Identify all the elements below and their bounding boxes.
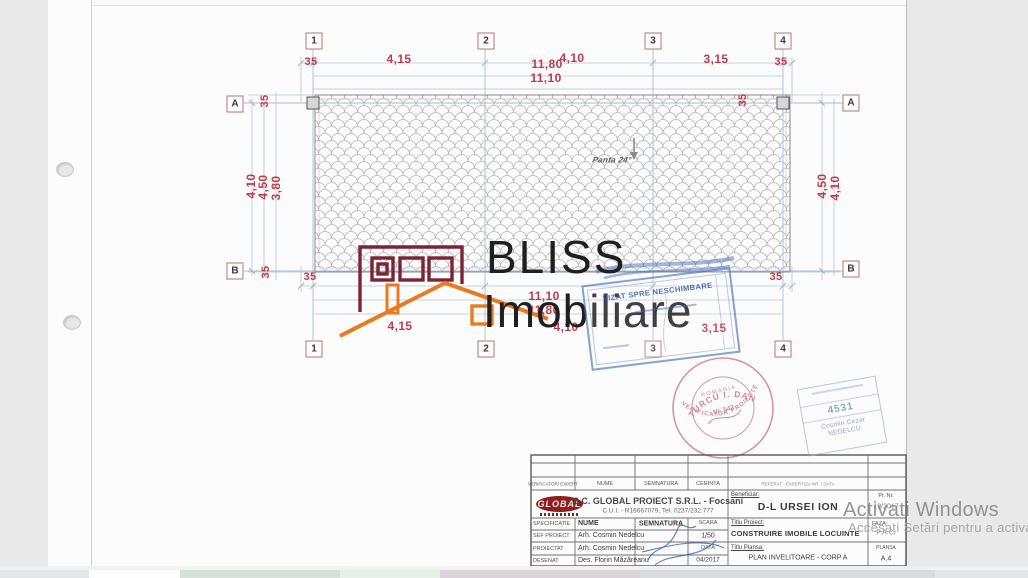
vizat-stamp: VIZAT SPRE NESCHIMBARE <box>581 267 740 371</box>
tb-data-label: DATA <box>701 545 715 551</box>
tb-specificatie-label: SPECIFICATIE <box>533 521 570 527</box>
thumbnail-filmstrip[interactable] <box>0 570 1028 578</box>
tb-spec-nume: NUME <box>578 520 599 527</box>
tb-nume-header: NUME <box>597 481 613 487</box>
tb-plansa-label: PLANSA <box>876 545 896 551</box>
tb-proiectat-name: Arh. Cosmin Nedelcu <box>578 545 644 552</box>
tb-plansa-title-value: PLAN INVELITOARE - CORP A <box>749 555 848 562</box>
global-logo-teeth <box>540 513 580 516</box>
tb-referat: REFERAT - EXPERTIZA NR. / DATA <box>761 482 834 487</box>
tb-beneficiar-value: D-L URSEI ION <box>758 501 838 513</box>
tb-plansa-title-label: Titlu Plansa: <box>731 545 764 551</box>
tb-proiectat-label: PROIECTAT <box>533 546 564 552</box>
tb-proiect-value: CONSTRUIRE IMOBILE LOCUINTE <box>731 529 860 538</box>
tb-data-value: 04/2017 <box>696 557 720 564</box>
brand-name: BLISS <box>486 234 626 280</box>
tb-company-cui: C.U.I. - R16667079, Tel. 0237/232.777 <box>602 508 713 515</box>
architect-stamp: 4531 Cosmin Cezar NEDELCU <box>797 376 888 457</box>
tb-proiect-label: Titlu Proiect: <box>731 520 764 526</box>
tb-scara-value: 1/50 <box>701 533 715 540</box>
tb-verificator-label: VERIFICATOR/ EXPERT <box>528 482 578 487</box>
tb-spec-semnatura: SEMNATURA <box>639 521 683 528</box>
tb-desenat-label: DESENAT <box>533 558 559 564</box>
tb-scara-label: SCARA <box>699 520 718 526</box>
tb-desenat-name: Des. Florin Măzăreanu <box>578 557 649 564</box>
tb-plansa-value: A.4 <box>881 556 892 563</box>
tb-company-name: S.C. GLOBAL PROIECT S.R.L. - Focsani <box>573 496 743 506</box>
tb-semnatura-header: SEMNATURA <box>644 481 678 487</box>
tb-sef-name: Arh. Cosmin Nedelcu <box>578 532 644 539</box>
tb-beneficiar-label: Beneficiar: <box>731 492 759 498</box>
activate-windows-text: Activati Windows <box>843 499 999 522</box>
screen: { "watermark": { "line1": "Activati Wind… <box>0 0 1028 578</box>
activate-windows-subtext: Accesați Setări pentru a activa Windows. <box>848 520 1028 535</box>
tb-cerinta-header: CERINTA <box>696 481 720 487</box>
tb-sef-label: SEF PROIECT <box>533 533 570 539</box>
